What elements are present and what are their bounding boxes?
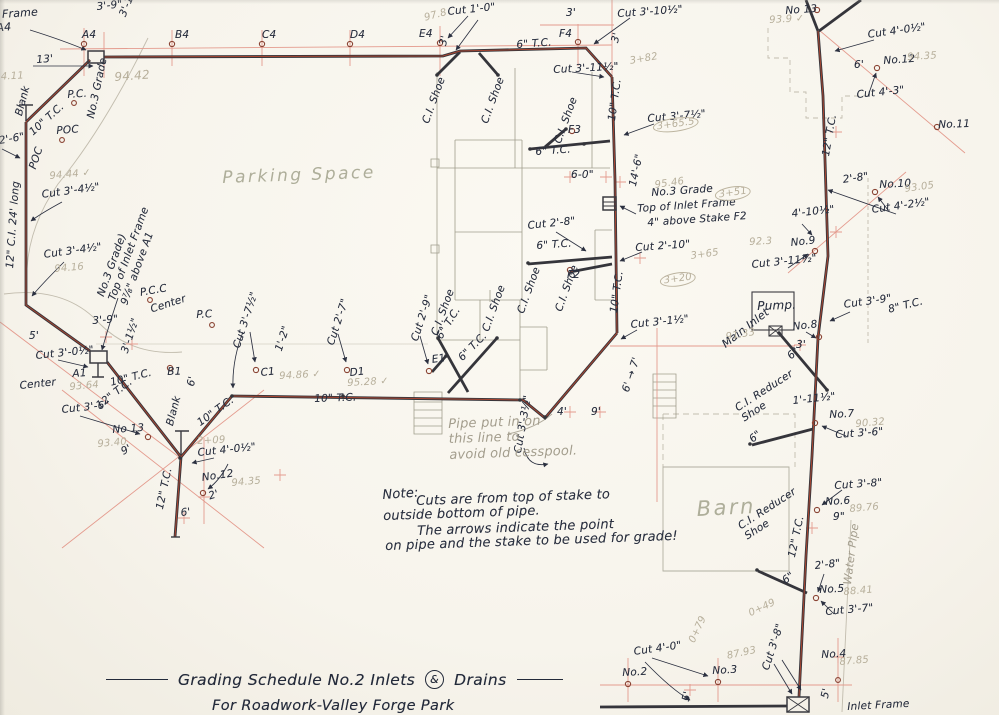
label-parking-space: Parking Space [222,163,376,188]
elev-91-33: 91.33 [725,327,756,344]
title-dash-right [517,679,563,680]
pipe-label-10tc-diag: 10" T.C. [195,394,237,429]
dim-6-0: 6-0" [571,169,594,181]
stake-label-no5: No.5 [819,583,845,597]
cut-2-7-d1: Cut 2'-7" [325,297,352,347]
label-barn: Barn [696,494,756,522]
stake-label-no2: No.2 [622,666,648,680]
pipe-label-12tc-v: 12" T.C. [154,467,175,511]
dim-6in-red1: 6" [747,428,764,445]
cut-2-8-f2: Cut 2'-8" [527,215,576,232]
scan-edge-left [0,0,5,715]
stake-label-no3: No.3 [712,664,738,678]
dim-14-6: 14'-6" [627,153,646,188]
label-ci-shoe-6: C.I. Shoe [515,265,543,315]
cut-3-4h-1: Cut 3'-4½" [41,181,101,201]
label-center-l: Center [19,376,57,392]
cut-3-11h-no9: Cut 3'-11½" [751,252,817,271]
elev-87-93: 87.93 [726,645,757,663]
elev-93-05: 93.05 [904,180,935,196]
stake-label-no11: No.11 [938,118,970,131]
cut-3-11h-f4: Cut 3'-11½" [553,61,619,77]
scan-edge-top [0,0,999,4]
dim-4-10h: 4'-10½" [791,203,835,220]
cut-3-0h: Cut 3'-0½" [35,344,94,362]
pipe-label-12tc-low: 12" T.C. [786,515,807,559]
stake-label-b4: B4 [175,29,189,41]
cut-2-10: Cut 2'-10" [635,238,691,254]
dim-13ft: 13' [36,53,54,67]
stake-label-c4: C4 [262,29,276,41]
label-ci-shoe-3: C.I. Shoe [552,95,580,145]
dim-2-8-no10: 2'-8" [842,170,869,186]
station-3-82: 3+82 [629,51,659,68]
label-inlet-frame-b: Inlet Frame [847,698,910,714]
dim-6in-red2: 6" [780,570,797,587]
label-blank-tl: Blank [13,85,33,117]
dim-5ft-a1: 5' [29,330,39,342]
title-ampersand-circled: & [425,670,444,689]
label-poc-2: POC [27,146,46,171]
pipe-label-8tc: 8" T.C. [887,295,924,316]
stake-label-c1: C1 [260,365,276,379]
cut-3-4h-2: Cut 3'-4½" [43,241,103,261]
stake-label-no13-l: No 13 [112,422,145,437]
stake-label-no8: No.8 [792,318,818,333]
elev-92-3: 92.3 [749,236,773,249]
label-ci-shoe-2: C.I. Shoe [479,75,507,125]
elev-94-35-l: 94.35 [231,475,262,489]
label-pcc: P.C.C [139,282,168,299]
dim-3-1h-a1: 3'-1½" [119,317,142,355]
elev-87-85: 87.85 [839,654,870,668]
cut-2-9-e1: Cut 2'-9" [409,293,436,343]
stake-label-no6: No.6 [825,495,851,509]
dim-1-2: 1'-2" [273,324,293,352]
dim-3ft-e4: 3' [437,34,452,47]
title-text-1: Grading Schedule No.2 Inlets [178,671,415,689]
elev-93-9: 93.9 ✓ [769,13,805,27]
pipe-label-10tc-bottom: 10" T.C. [314,392,357,406]
elev-89-76: 89.76 [849,501,880,515]
cut-3-10h: Cut 3'-10½" [617,3,683,20]
pipe-label-6tc-e1b: 6" T.C. [456,330,490,364]
label-ci-shoe-7: C.I. Shoe [553,263,581,313]
dim-3ft-f4v: 3' [609,31,624,44]
label-pc-m: P.C [196,308,213,321]
stake-label-d4: D4 [350,29,365,41]
sheet-title: Grading Schedule No.2 Inlets & Drains [106,670,563,689]
cut-3-8-v: Cut 3'-8" [760,622,787,672]
elev-88-41: 88.41 [843,584,874,598]
sheet-subtitle: For Roadwork-Valley Forge Park [212,698,455,714]
cut-4-2h: Cut 4'-2½" [871,196,931,216]
pipe-label-10tc-r2: 10" T.C. [608,270,626,314]
stake-label-e4: E4 [419,28,433,40]
cut-4-0h-r: Cut 4'-0½" [867,21,927,41]
label-no3-grade-tl: No.3 Grade [85,57,110,120]
elev-93-64: 93.64 [69,379,100,393]
elev-94-35-r: 94.35 [907,50,937,63]
pipe-label-6tc-f3: 6" T.C. [535,144,571,159]
stake-label-a4: A4 [82,29,96,41]
dim-3-9-a1: 3'-9" [92,313,119,327]
elev-94-16: 94.16 [54,261,85,275]
elev-95-28: 95.28 ✓ [347,376,389,390]
cut-4-0: Cut 4'-0" [633,639,682,658]
dim-3ft-f4: 3' [566,7,576,19]
stake-label-no9: No.9 [790,234,816,249]
dim-2-8-no5: 2'-8" [814,557,841,572]
stake-label-e1: E1 [431,352,446,366]
dim-6-7: 6' → 7' [620,356,643,394]
label-blank-j: Blank [164,395,184,427]
cut-3-7-no5: Cut 3'-7" [825,602,874,619]
station-3-51: 3+51 [714,184,752,203]
pipe-label-6tc-top: 6" T.C. [516,37,552,52]
elev-97-8: 97.8 [423,7,448,24]
label-ci-shoe-5: C.I. Shoe [480,283,508,333]
stake-label-a1: A1 [72,367,87,380]
title-dash-left [106,679,168,680]
dim-1-11h: 1'-11½" [792,390,836,407]
station-0-49: 0+49 [747,597,778,620]
dim-9ft: 9' [591,406,601,418]
elev-94-42: 94.42 [114,68,150,85]
pipe-label-12tc-r: 12" T.C. [820,113,840,157]
dim-5ft-no3: 5' [680,690,694,702]
station-0-79: 0+79 [687,614,710,645]
elev-94-44: 94.44 ✓ [49,167,91,182]
station-2-09: 2+09 [197,435,226,448]
dim-6ft-l: 6' [180,506,191,519]
dim-6ft-c1: 6' [185,375,199,387]
title-text-2: Drains [454,671,506,689]
cut-3-1h: Cut 3'-1½" [630,313,689,331]
station-3-65: 3+65 [690,247,720,263]
label-pc-tl: P.C. [67,88,88,102]
pipe-label-6tc-f2: 6" T.C. [536,238,572,253]
note-below-a4: of Inlet Framebelow A4 [0,6,39,37]
stake-label-no7: No.7 [829,408,855,422]
stake-label-f4: F4 [559,28,572,40]
dim-6ft-no12r: 6' [854,59,864,71]
elev-94-86: 94.86 ✓ [279,369,321,383]
pipe-label-12ci: 12" C.I. 24' long [4,181,22,269]
dim-2ft-l: 2' [207,488,220,503]
note-title: Note: [382,485,419,503]
cut-3-9-no8: Cut 3'-9" [843,292,892,311]
stake-label-b1: B1 [167,366,182,379]
drawing-sheet: 3'-9"of Inlet Framebelow A4A4B4C4D4E4F43… [0,0,999,715]
cut-3-8-no6: Cut 3'-8" [834,477,883,493]
dim-9in-no6: 9" [833,511,845,523]
cut-3-7h-c1: Cut 3'-7½" [231,290,261,349]
station-3-20: 3+20 [659,270,697,289]
stake-label-no12-l: No.12 [201,468,234,485]
pipe-label-10tc-r1: 10" T.C. [606,78,624,122]
annotation-layer: 3'-9"of Inlet Framebelow A4A4B4C4D4E4F43… [0,0,999,715]
label-ci-shoe-1: C.I. Shoe [420,75,448,125]
cut-3-6-no13: Cut 3'-6" [61,399,110,416]
note-cesspool: Pipe put in onthis line toavoid old cess… [448,413,577,463]
label-water-pipe: Water Pipe [842,523,862,586]
cut-4-3: Cut 4'-3" [856,84,905,101]
label-poc-1: POC [56,123,79,137]
dim-5ft-no4: 5' [819,687,833,699]
